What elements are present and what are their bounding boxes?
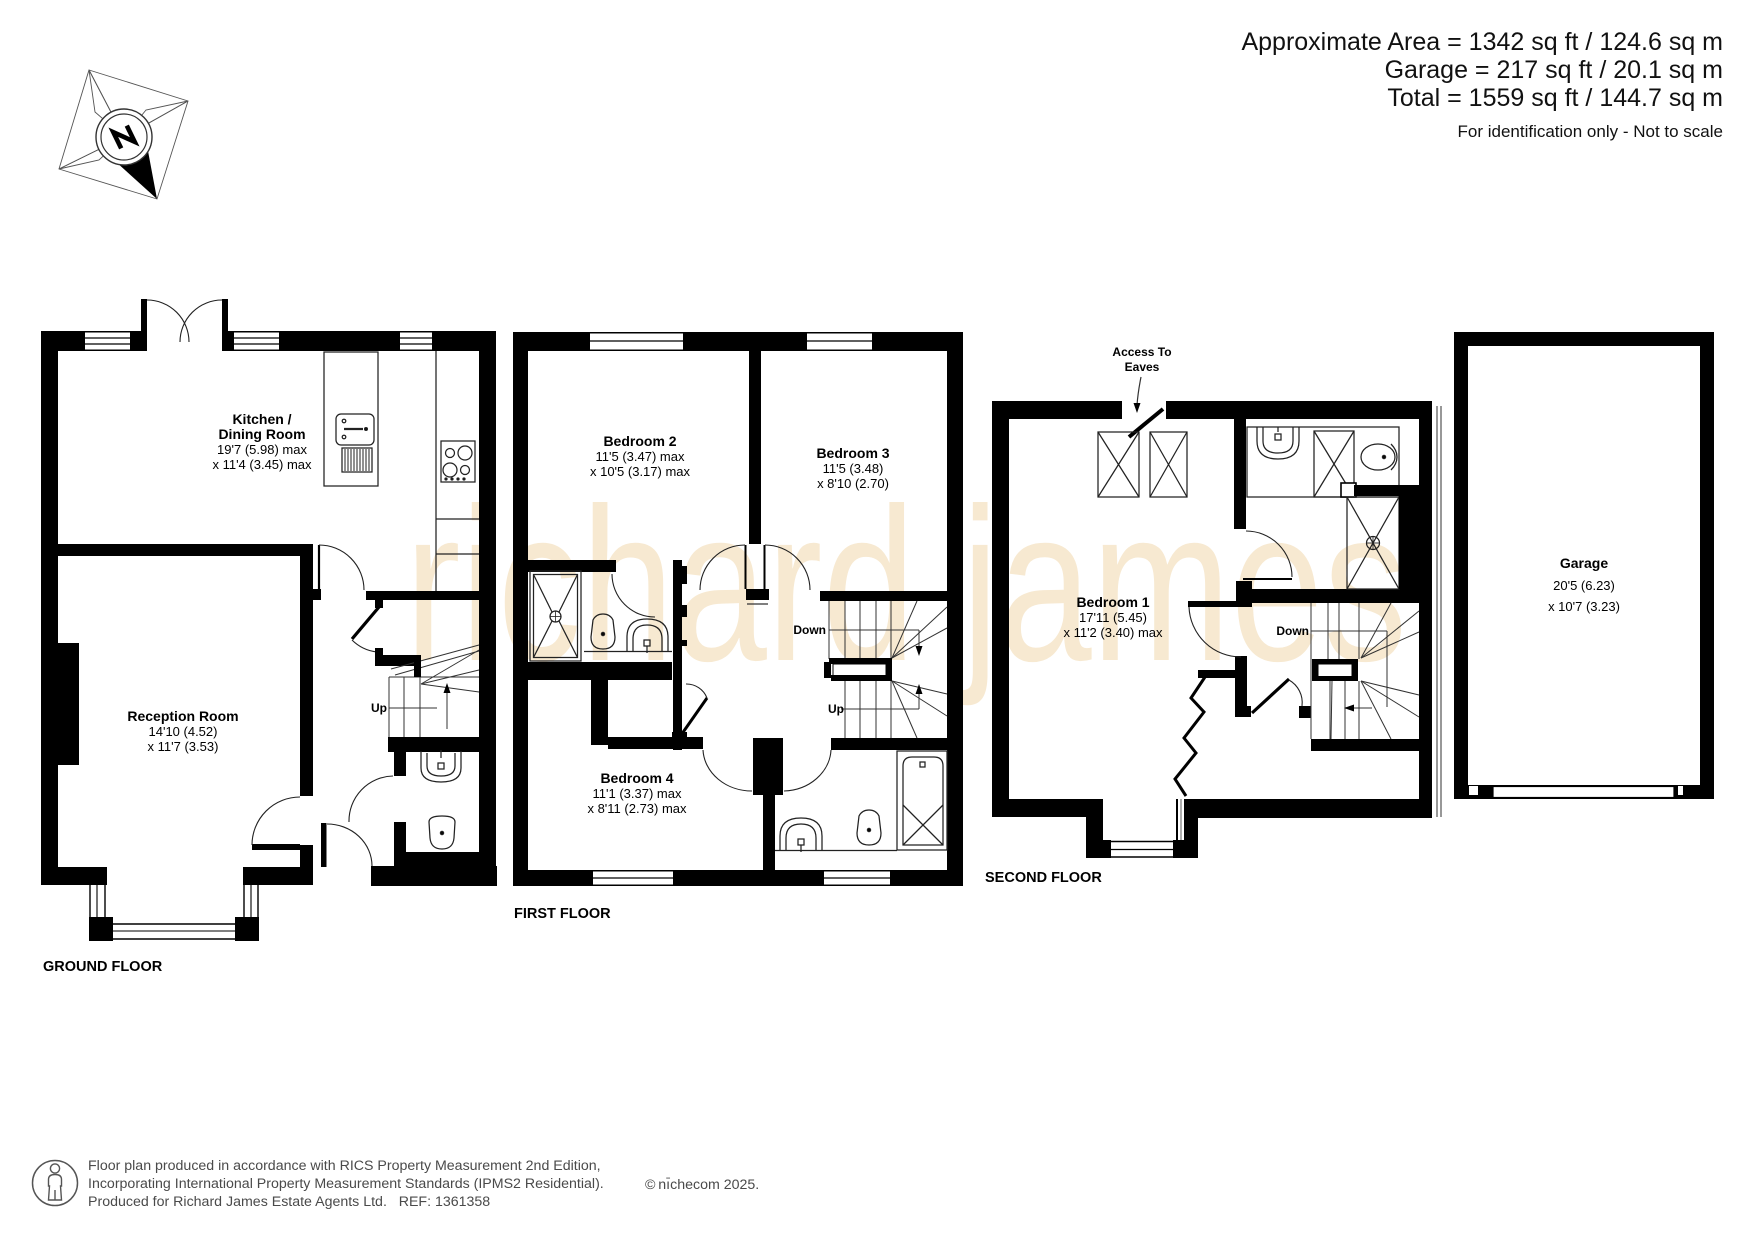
svg-text:Down: Down — [793, 623, 826, 637]
svg-text:x 11'2 (3.40) max: x 11'2 (3.40) max — [1063, 625, 1163, 640]
svg-text:Floor plan produced in accorda: Floor plan produced in accordance with R… — [88, 1158, 601, 1174]
svg-text:20'5 (6.23): 20'5 (6.23) — [1553, 578, 1615, 593]
svg-text:Up: Up — [828, 702, 844, 716]
svg-text:Produced for Richard James Est: Produced for Richard James Estate Agents… — [88, 1194, 490, 1210]
svg-text:x 8'11 (2.73) max: x 8'11 (2.73) max — [587, 801, 687, 816]
svg-text:For identification only - Not: For identification only - Not to scale — [1457, 122, 1723, 141]
svg-text:Bedroom 4: Bedroom 4 — [600, 770, 673, 786]
svg-text:Down: Down — [1276, 624, 1309, 638]
svg-text:Garage: Garage — [1560, 555, 1608, 571]
svg-text:11'5 (3.47) max: 11'5 (3.47) max — [596, 449, 685, 464]
svg-text:Bedroom 3: Bedroom 3 — [816, 445, 889, 461]
svg-text:Bedroom 1: Bedroom 1 — [1076, 594, 1149, 610]
svg-text:Incorporating International Pr: Incorporating International Property Mea… — [88, 1176, 604, 1192]
svg-text:14'10 (4.52): 14'10 (4.52) — [149, 724, 218, 739]
svg-text:x 10'7 (3.23): x 10'7 (3.23) — [1548, 599, 1620, 614]
svg-text:FIRST FLOOR: FIRST FLOOR — [514, 906, 611, 922]
svg-text:Eaves: Eaves — [1125, 360, 1160, 374]
svg-text:SECOND FLOOR: SECOND FLOOR — [985, 870, 1102, 886]
svg-text:Approximate Area = 1342 sq ft: Approximate Area = 1342 sq ft / 124.6 sq… — [1241, 28, 1723, 56]
svg-text:19'7 (5.98) max: 19'7 (5.98) max — [217, 442, 307, 457]
svg-text:11'1 (3.37) max: 11'1 (3.37) max — [593, 786, 682, 801]
svg-text:x 10'5 (3.17) max: x 10'5 (3.17) max — [590, 464, 691, 479]
svg-text:x 11'4 (3.45) max: x 11'4 (3.45) max — [212, 457, 312, 472]
svg-text:Kitchen /: Kitchen / — [232, 411, 291, 427]
svg-text:17'11 (5.45): 17'11 (5.45) — [1079, 610, 1147, 625]
svg-text:Dining Room: Dining Room — [218, 426, 305, 442]
svg-text:11'5 (3.48): 11'5 (3.48) — [823, 461, 884, 476]
svg-text:Up: Up — [371, 701, 387, 715]
svg-text:x 11'7 (3.53): x 11'7 (3.53) — [148, 739, 219, 754]
svg-text:Bedroom 2: Bedroom 2 — [603, 433, 676, 449]
svg-text:GROUND FLOOR: GROUND FLOOR — [43, 959, 163, 975]
svg-text:Reception Room: Reception Room — [127, 708, 238, 724]
svg-text:Access To: Access To — [1112, 345, 1171, 359]
svg-text:Garage = 217 sq ft / 20.1 sq m: Garage = 217 sq ft / 20.1 sq m — [1385, 56, 1723, 84]
svg-text:© nı̄checom 2025.: © nı̄checom 2025. — [645, 1177, 759, 1193]
svg-text:Total = 1559 sq ft / 144.7 sq: Total = 1559 sq ft / 144.7 sq m — [1387, 84, 1723, 112]
svg-text:x 8'10 (2.70): x 8'10 (2.70) — [817, 476, 889, 491]
